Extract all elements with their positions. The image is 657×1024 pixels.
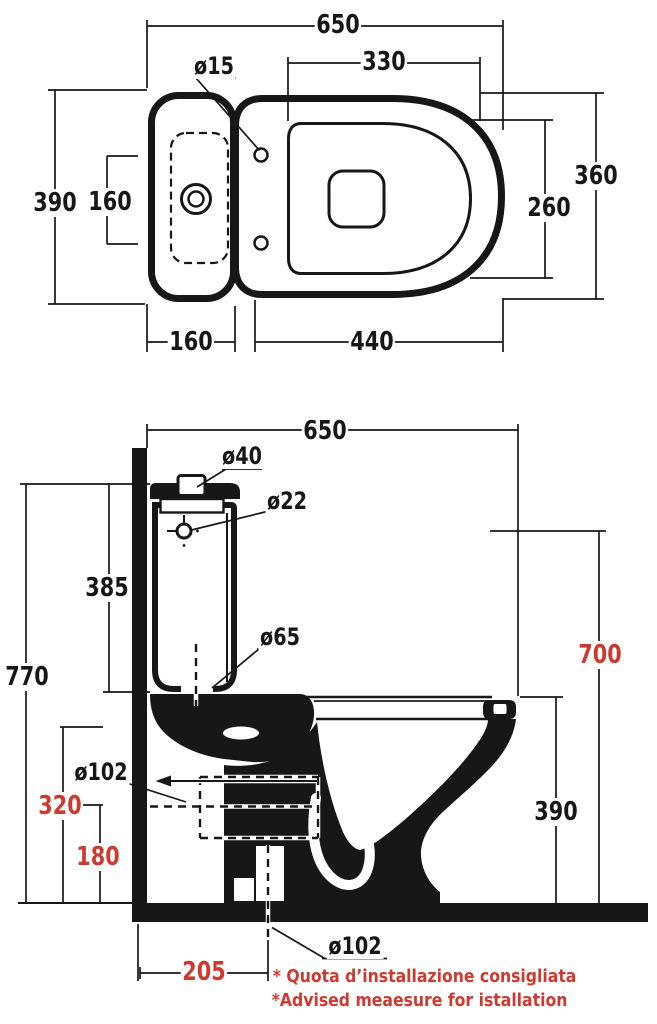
footnote-italian: * Quota d’installazione consigliata bbox=[271, 967, 578, 987]
dim-bowl-inner-width: 260 bbox=[526, 194, 573, 222]
dim-floor-outlet-diameter: ø102 bbox=[327, 933, 383, 959]
hinge-hole-top bbox=[255, 149, 268, 162]
installation-drawing: 650 330 ø15 390 160 360 260 160 440 650 … bbox=[0, 0, 657, 1024]
dim-tank-depth: 160 bbox=[168, 328, 215, 356]
seat-hinge-hole-side bbox=[223, 727, 259, 740]
water-inlet-hole bbox=[177, 524, 191, 538]
dim-seat-inner-length: 330 bbox=[361, 48, 408, 76]
flush-hole bbox=[329, 171, 384, 227]
dim-tank-height: 385 bbox=[84, 574, 131, 602]
floor-section bbox=[132, 903, 648, 922]
dim-bowl-width: 360 bbox=[573, 162, 620, 190]
lid-lip bbox=[161, 499, 224, 513]
dim-bowl-height: 390 bbox=[533, 798, 580, 826]
wall-section bbox=[132, 448, 147, 922]
dim-tank-width: 390 bbox=[32, 189, 79, 217]
dim-hinge-hole-diameter: ø15 bbox=[192, 53, 235, 79]
top-view-outline bbox=[152, 96, 502, 299]
dim-inlet-height: 700 bbox=[577, 641, 624, 669]
dim-hinge-spacing: 160 bbox=[87, 188, 134, 216]
dim-flush-valve-diameter: ø65 bbox=[258, 624, 301, 650]
dim-overall-height: 770 bbox=[4, 663, 51, 691]
dim-floor-outlet-distance: 205 bbox=[181, 958, 228, 986]
dim-overall-depth: 650 bbox=[302, 417, 349, 445]
tank-outline-top bbox=[152, 96, 234, 299]
dim-overall-width: 650 bbox=[315, 11, 362, 39]
hinge-hole-bottom bbox=[255, 237, 268, 250]
foot-notch bbox=[234, 878, 254, 901]
dim-rear-outlet-diameter: ø102 bbox=[73, 759, 129, 785]
dim-lid-button-diameter: ø40 bbox=[220, 443, 263, 469]
footnote-english: *Advised meaesure for istallation bbox=[270, 991, 569, 1011]
dim-outlet-axis-height: 180 bbox=[75, 843, 122, 871]
dim-bowl-length: 440 bbox=[349, 328, 396, 356]
wall-outlet-arrow bbox=[156, 776, 172, 787]
dim-water-inlet-diameter: ø22 bbox=[265, 488, 308, 514]
dim-rear-outlet-height: 320 bbox=[37, 792, 84, 820]
